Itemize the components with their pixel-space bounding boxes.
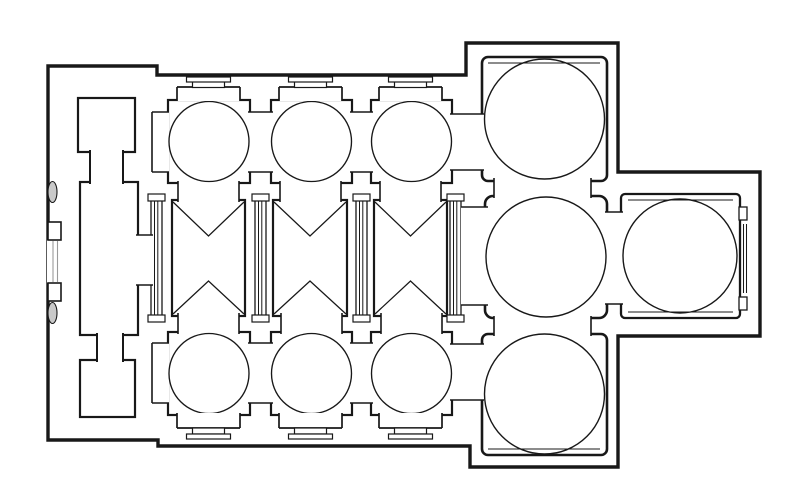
- nave-bay-3: [374, 200, 447, 316]
- portal-niche-south-2: [279, 413, 342, 428]
- pier-cap: [447, 315, 464, 322]
- apse-domed-hall: [621, 194, 740, 318]
- pier-cap: [353, 194, 370, 201]
- doorway-aisle-south-1-2: [248, 343, 273, 403]
- nave-pier-strip-2: [356, 198, 367, 318]
- west-entrance-gap: [47, 240, 61, 283]
- floor-plan-figure: [0, 0, 800, 488]
- aisle-north-bay-1: [168, 100, 250, 183]
- doorway-hall-to-nave: [136, 235, 153, 285]
- portal-molding: [187, 77, 231, 82]
- northeast-domed-chamber: [482, 57, 607, 181]
- arch-nave1-to-north-aisle: [178, 181, 239, 202]
- apse-east-pilaster-south: [739, 297, 747, 310]
- portal-molding: [187, 434, 231, 439]
- portal-niche-south-3: [379, 413, 442, 428]
- portal-molding: [389, 77, 433, 82]
- arch-nave3-to-north-aisle: [380, 181, 441, 202]
- nave-pier-strip-1: [255, 198, 266, 318]
- church-floor-plan-drawing: [0, 0, 800, 488]
- portal-molding: [193, 428, 225, 434]
- pier-cap: [252, 194, 269, 201]
- aisle-south-bay-1: [168, 332, 250, 415]
- portal-niche-north-2: [279, 87, 342, 101]
- doorway-aisle-north-to-narthex-niche: [152, 112, 169, 172]
- doorway-aisle-south-to-narthex-niche: [152, 343, 169, 403]
- doorway-aisle-north-3-to-northeast: [450, 114, 484, 170]
- portal-niche-north-1: [177, 87, 240, 101]
- portal-molding: [289, 77, 333, 82]
- portal-molding: [389, 434, 433, 439]
- page: [0, 0, 800, 488]
- arch-nave3-to-south-aisle: [381, 313, 442, 334]
- nave-bay-1: [172, 200, 245, 316]
- doorway-aisle-south-3-to-southeast: [450, 344, 484, 400]
- arch-nave2-to-south-aisle: [281, 313, 342, 334]
- doorway-aisle-north-1-2: [248, 112, 273, 172]
- doorway-aisle-south-2-3: [350, 343, 373, 403]
- apse-east-pilaster-north: [739, 207, 747, 220]
- doorway-aisle-north-2-3: [350, 112, 373, 172]
- arch-crossing-to-southeast: [494, 316, 591, 336]
- west-facade-column-south: [48, 303, 57, 324]
- pier-cap: [148, 315, 165, 322]
- pier-cap: [148, 194, 165, 201]
- pier-cap: [252, 315, 269, 322]
- portal-niche-south-1: [177, 413, 240, 428]
- portal-molding: [295, 428, 327, 434]
- nave-bay-2: [273, 200, 347, 316]
- portal-molding: [395, 428, 427, 434]
- nave-pier-strip-3: [450, 198, 461, 318]
- west-portal-jamb-north: [48, 222, 61, 240]
- arch-crossing-to-apse: [605, 212, 623, 304]
- narthex-hall: [80, 182, 138, 335]
- arch-nave1-to-south-aisle: [178, 313, 239, 334]
- narthex-south-chamber: [80, 360, 135, 417]
- pier-cap: [353, 315, 370, 322]
- portal-molding: [289, 434, 333, 439]
- pier-cap: [447, 194, 464, 201]
- narthex-north-neck: [90, 150, 123, 184]
- arch-nave-to-crossing: [461, 207, 488, 305]
- west-facade-column-north: [48, 182, 57, 203]
- west-portal-jamb-south: [48, 283, 61, 301]
- arch-northeast-to-crossing: [494, 178, 591, 198]
- narthex-north-chamber: [78, 98, 135, 152]
- narthex-south-neck: [97, 333, 123, 362]
- arch-nave2-to-north-aisle: [280, 181, 341, 202]
- portal-niche-north-3: [379, 87, 442, 101]
